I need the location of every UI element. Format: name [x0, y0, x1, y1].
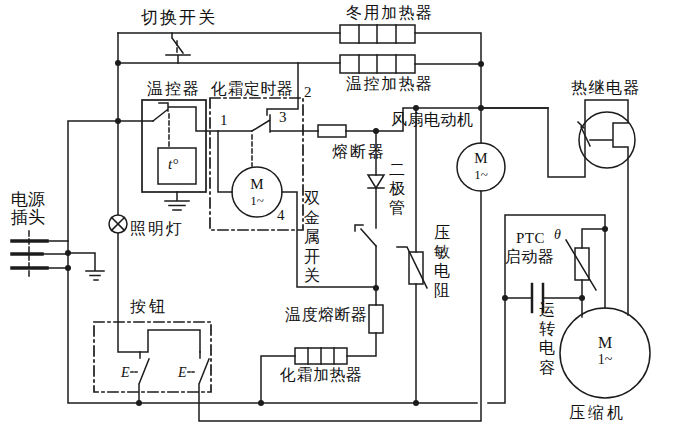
temp-fuse-label: 温度熔断器: [285, 305, 368, 326]
timer-motor-m-text: M: [242, 176, 272, 193]
winter-heater-label: 冬用加热器: [346, 3, 434, 24]
thermal-relay-label: 热继电器: [571, 78, 641, 99]
defrost-heater-label: 化霜加热器: [280, 365, 363, 386]
bimetal-contact-symbol: [355, 225, 376, 246]
timer-motor-phase-text: 1~: [242, 193, 272, 209]
lamp-label: 照明灯: [130, 219, 184, 240]
ptc-starter-symbol: [566, 229, 605, 317]
switchover-switch-label: 切换开关: [141, 6, 217, 29]
varistor-label: 压敏电阻: [433, 223, 451, 300]
winter-heater-symbol: [340, 25, 415, 43]
thermo-heater-symbol: [340, 55, 415, 73]
lamp-symbol: [109, 215, 127, 233]
diode-label: 二极管: [388, 160, 406, 218]
temp-fuse-symbol: [347, 246, 383, 356]
power-plug-label: 电源插头: [11, 191, 49, 227]
fan-motor-m-text: M: [466, 150, 496, 167]
compressor-phase-text: 1~: [590, 352, 620, 368]
thermal-relay-symbol: [481, 100, 635, 315]
thermo-heater-label: 温控加热器: [346, 74, 434, 95]
fuse-label: 熔断器: [332, 142, 386, 163]
compressor-m-text: M: [590, 334, 620, 352]
changeover-switch-symbol: [166, 33, 190, 63]
ptc-starter-label-line2: 启动器: [505, 247, 555, 268]
timer-terminal-1: 1: [220, 112, 228, 129]
bimetal-switch-label: 双金属开关: [303, 189, 321, 285]
fan-motor-label: 风扇电动机: [391, 110, 474, 131]
timer-terminal-3: 3: [279, 109, 287, 126]
ground-symbol-plug: [68, 253, 104, 280]
temp-sensor-text: t°: [168, 156, 178, 173]
fan-motor-phase-text: 1~: [466, 167, 496, 183]
thermostat-label: 温控器: [147, 79, 201, 100]
circuit-diagram: 切换开关 冬用加热器 温控加热器 热继电器 温控器 化霜定时器 风扇电动机 熔断…: [0, 0, 695, 436]
defrost-timer-label: 化霜定时器: [211, 79, 294, 100]
thermostat-symbol: [142, 100, 252, 210]
push-button-label: 按钮: [130, 297, 168, 318]
varistor-symbol: [397, 108, 427, 403]
button-actuator-right-text: E: [178, 365, 187, 381]
compressor-label: 压缩机: [569, 403, 626, 424]
theta-text: θ: [554, 227, 561, 243]
button-actuator-left-text: E: [121, 365, 130, 381]
run-capacitor-label: 运转电容: [538, 300, 556, 377]
timer-terminal-2: 2: [304, 84, 312, 101]
timer-terminal-4: 4: [277, 207, 285, 224]
ptc-starter-label-line1: PTC: [516, 230, 545, 247]
power-plug-symbol: [12, 121, 477, 403]
